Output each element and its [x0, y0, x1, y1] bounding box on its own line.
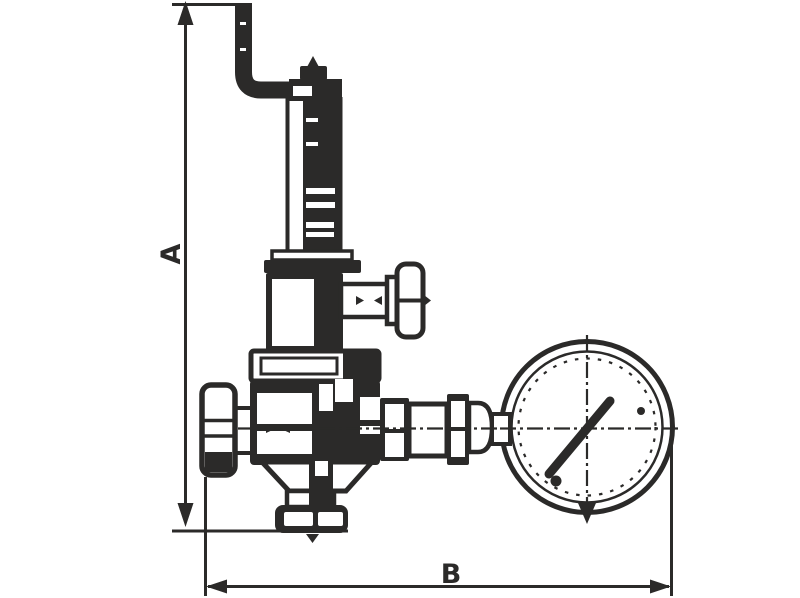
adjusting-screw — [303, 101, 339, 255]
side-valve-stem — [341, 284, 390, 317]
dimension-b-line — [206, 580, 671, 594]
valve-technical-drawing: A B — [0, 0, 800, 598]
inlet-valve — [202, 385, 255, 475]
stem-tip — [307, 56, 319, 67]
outlet-tip — [306, 534, 319, 543]
gauge-set-marker — [637, 407, 645, 415]
body-top-flange — [251, 351, 379, 381]
side-valve — [341, 264, 431, 337]
arrowhead-right-icon — [650, 580, 671, 594]
dimension-b-label: B — [441, 559, 462, 590]
pressure-gauge — [492, 335, 679, 524]
gauge-needle-hub — [551, 476, 562, 487]
adjusting-cap — [300, 66, 327, 80]
valve-body — [250, 379, 388, 465]
arrowhead-left-icon — [206, 580, 227, 594]
bonnet-flange — [264, 260, 361, 273]
union-nut — [409, 404, 447, 456]
bottom-outlet — [262, 458, 372, 543]
lever-pipe — [240, 5, 300, 90]
bonnet-ring — [272, 251, 352, 260]
dimension-a-label: A — [156, 243, 187, 264]
arrowhead-down-icon — [178, 503, 194, 527]
